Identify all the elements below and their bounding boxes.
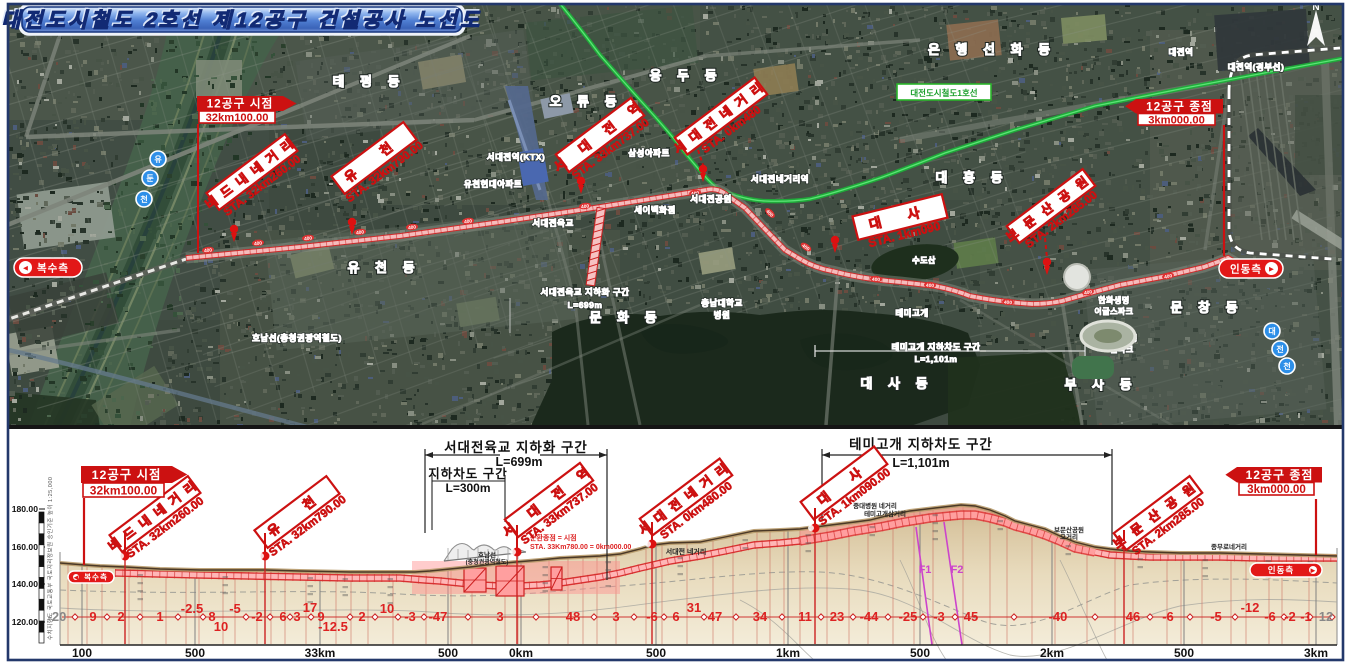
svg-text:-3: -3 — [933, 609, 945, 624]
svg-text:400: 400 — [464, 218, 473, 225]
svg-text:삼성아파트: 삼성아파트 — [628, 148, 670, 158]
svg-text:유천현대아파트: 유천현대아파트 — [464, 179, 522, 189]
svg-text:문 창 동: 문 창 동 — [1170, 300, 1243, 315]
svg-text:12공구 시점: 12공구 시점 — [207, 97, 274, 111]
svg-text:12공구 종점: 12공구 종점 — [1246, 467, 1314, 482]
svg-text:천: 천 — [1283, 361, 1290, 371]
svg-text:-2: -2 — [1284, 609, 1296, 624]
svg-text:-44: -44 — [860, 609, 880, 624]
svg-text:400: 400 — [356, 229, 365, 236]
svg-text:12공구 시점: 12공구 시점 — [92, 467, 162, 482]
svg-text:►: ► — [1268, 265, 1276, 274]
svg-text:서대전육교 지하화 구간: 서대전육교 지하화 구간 — [541, 287, 630, 297]
svg-text:태 평 동: 태 평 동 — [332, 74, 405, 89]
svg-text:중대병원 네거리: 중대병원 네거리 — [853, 501, 897, 510]
svg-text:-25: -25 — [899, 609, 918, 624]
svg-text:둔: 둔 — [146, 174, 154, 183]
svg-text:400: 400 — [304, 235, 313, 242]
svg-text:이글스파크: 이글스파크 — [1094, 306, 1133, 316]
svg-text:33km: 33km — [305, 646, 336, 660]
svg-text:수도산: 수도산 — [912, 255, 936, 265]
svg-text:충남대학교: 충남대학교 — [701, 298, 743, 308]
svg-text:400: 400 — [872, 277, 881, 283]
svg-text:복수측: 복수측 — [37, 261, 69, 274]
svg-text:31: 31 — [687, 600, 701, 615]
svg-text:(충청권광역철도): (충청권광역철도) — [466, 558, 509, 566]
svg-text:120.00: 120.00 — [12, 617, 39, 627]
svg-text:서대전네거리역: 서대전네거리역 — [751, 174, 809, 184]
svg-text:대: 대 — [1268, 326, 1275, 336]
svg-text:서대전육교: 서대전육교 — [532, 218, 574, 228]
svg-text:호남선: 호남선 — [478, 550, 496, 559]
svg-text:보문산공원: 보문산공원 — [1054, 525, 1084, 534]
svg-text:34: 34 — [753, 609, 768, 624]
svg-text:-5: -5 — [1210, 609, 1222, 624]
svg-text:500: 500 — [910, 646, 930, 660]
svg-text:지하차도 구간: 지하차도 구간 — [428, 466, 507, 481]
svg-text:오 류 동: 오 류 동 — [549, 94, 622, 109]
svg-text:F2: F2 — [951, 564, 964, 576]
svg-text:대 흥 동: 대 흥 동 — [935, 170, 1008, 185]
svg-text:►: ► — [1309, 566, 1317, 575]
svg-text:10: 10 — [214, 619, 228, 634]
svg-text:오거리: 오거리 — [1060, 532, 1078, 541]
svg-text:47: 47 — [708, 609, 722, 624]
svg-text:대전역(경부선): 대전역(경부선) — [1228, 62, 1285, 72]
svg-text:32km100.00: 32km100.00 — [90, 483, 158, 497]
svg-text:9: 9 — [89, 609, 96, 624]
svg-text:L=1,101m: L=1,101m — [892, 456, 949, 470]
svg-text:전: 전 — [1276, 344, 1283, 354]
svg-text:호남선(충청권광역철도): 호남선(충청권광역철도) — [252, 333, 342, 343]
svg-text:서대전육교 지하화 구간: 서대전육교 지하화 구간 — [444, 439, 588, 455]
svg-text:100: 100 — [72, 646, 92, 660]
svg-text:-40: -40 — [1049, 609, 1068, 624]
svg-text:2: 2 — [117, 609, 124, 624]
svg-text:대 사 동: 대 사 동 — [860, 376, 933, 391]
svg-text:문 화 동: 문 화 동 — [589, 310, 662, 325]
svg-text:400: 400 — [1004, 300, 1013, 307]
svg-text:병원: 병원 — [714, 310, 731, 320]
svg-text:◄: ◄ — [72, 573, 80, 582]
svg-text:-6: -6 — [646, 609, 658, 624]
svg-text:대전도시철도 2호선 제12공구 건설공사 노선도: 대전도시철도 2호선 제12공구 건설공사 노선도 — [0, 9, 487, 32]
svg-text:유 천 동: 유 천 동 — [347, 260, 420, 275]
svg-text:테미고개삼거리: 테미고개삼거리 — [864, 509, 906, 518]
svg-text:400: 400 — [926, 283, 935, 289]
svg-text:11: 11 — [798, 609, 812, 624]
svg-text:천: 천 — [140, 194, 147, 204]
svg-text:3km: 3km — [1304, 646, 1328, 660]
svg-text:-6: -6 — [1264, 609, 1276, 624]
svg-text:500: 500 — [185, 646, 205, 660]
svg-text:3: 3 — [496, 609, 503, 624]
svg-text:400: 400 — [408, 224, 417, 231]
svg-text:-2.5: -2.5 — [181, 601, 203, 616]
svg-text:용 두 동: 용 두 동 — [649, 68, 722, 83]
svg-text:-12.5: -12.5 — [318, 619, 348, 634]
svg-text:L=300m: L=300m — [445, 481, 490, 495]
svg-text:48: 48 — [566, 609, 580, 624]
svg-text:180.00: 180.00 — [12, 504, 39, 514]
svg-text:1km: 1km — [776, 646, 800, 660]
svg-text:L=1,101m: L=1,101m — [915, 354, 958, 364]
svg-text:-6: -6 — [1162, 609, 1174, 624]
svg-text:2km: 2km — [1040, 646, 1064, 660]
svg-text:서대전 네거리: 서대전 네거리 — [666, 547, 707, 556]
svg-text:STA. 33Km780.00 = 0km000.00: STA. 33Km780.00 = 0km000.00 — [530, 544, 631, 551]
svg-text:-2: -2 — [251, 609, 263, 624]
svg-text:1: 1 — [156, 609, 163, 624]
svg-text:L=699m: L=699m — [568, 300, 603, 310]
svg-text:400: 400 — [581, 203, 590, 210]
svg-text:대전도시철도1호선: 대전도시철도1호선 — [910, 88, 977, 98]
svg-text:-12: -12 — [1241, 600, 1260, 615]
svg-text:45: 45 — [964, 609, 978, 624]
svg-text:테미고개: 테미고개 — [895, 308, 928, 318]
svg-text:◄: ◄ — [22, 264, 30, 273]
svg-text:400: 400 — [254, 240, 263, 247]
svg-text:인동측: 인동측 — [1268, 565, 1294, 575]
svg-text:유: 유 — [154, 155, 162, 164]
svg-text:500: 500 — [646, 646, 666, 660]
svg-text:서대전공원: 서대전공원 — [690, 194, 732, 204]
svg-text:23: 23 — [830, 609, 844, 624]
svg-text:6: 6 — [672, 609, 679, 624]
svg-text:-5: -5 — [229, 601, 241, 616]
svg-text:인동측: 인동측 — [1230, 262, 1262, 275]
svg-text:-47: -47 — [429, 609, 448, 624]
svg-text:3: 3 — [612, 609, 619, 624]
svg-text:은 행 선 화 동: 은 행 선 화 동 — [928, 42, 1056, 57]
svg-text:2: 2 — [358, 609, 365, 624]
svg-text:500: 500 — [438, 646, 458, 660]
svg-text:-3: -3 — [404, 609, 416, 624]
svg-text:3km000.00: 3km000.00 — [1247, 483, 1306, 496]
svg-text:6: 6 — [279, 609, 286, 624]
svg-text:46: 46 — [1126, 609, 1140, 624]
svg-text:3: 3 — [293, 609, 300, 624]
svg-text:-20: -20 — [48, 609, 67, 624]
svg-text:12: 12 — [1319, 609, 1333, 624]
svg-text:한화생명: 한화생명 — [1098, 295, 1129, 305]
svg-text:세이백화점: 세이백화점 — [634, 205, 676, 215]
svg-text:서대전역(KTX): 서대전역(KTX) — [487, 152, 545, 162]
svg-text:32km100.00: 32km100.00 — [206, 112, 269, 124]
svg-text:160.00: 160.00 — [12, 542, 39, 552]
svg-text:12공구 종점: 12공구 종점 — [1146, 99, 1213, 113]
svg-text:복수측: 복수측 — [84, 572, 108, 582]
svg-text:F1: F1 — [919, 564, 932, 576]
svg-text:-1: -1 — [1300, 609, 1312, 624]
svg-text:종무로네거리: 종무로네거리 — [1211, 542, 1247, 551]
svg-text:부 사 동: 부 사 동 — [1064, 377, 1137, 392]
svg-text:140.00: 140.00 — [12, 579, 39, 589]
svg-text:400: 400 — [204, 247, 213, 254]
svg-text:0km: 0km — [509, 646, 533, 660]
svg-text:대전역: 대전역 — [1169, 47, 1194, 57]
svg-text:3km000.00: 3km000.00 — [1148, 114, 1205, 126]
svg-text:500: 500 — [1174, 646, 1194, 660]
